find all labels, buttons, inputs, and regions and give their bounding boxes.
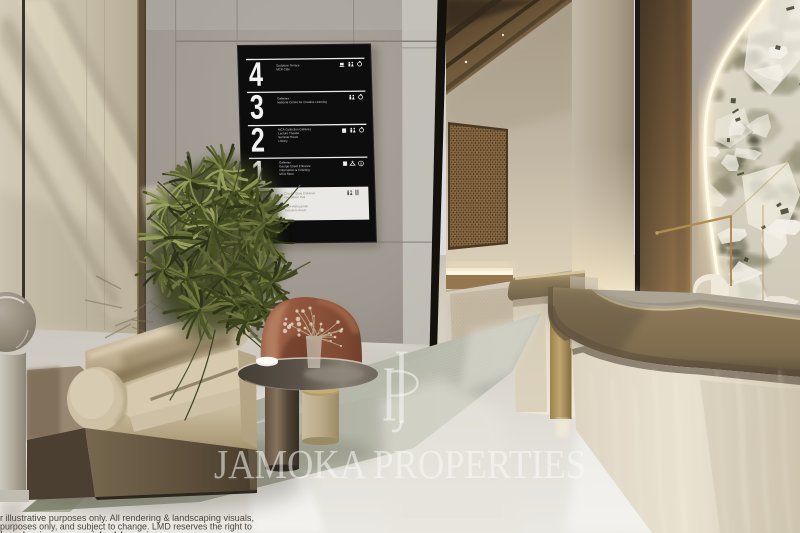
svg-text:JAMOKA PROPERTIES: JAMOKA PROPERTIES xyxy=(214,441,586,487)
svg-text:Library: Library xyxy=(278,139,288,143)
svg-text:National Centre for Creative L: National Centre for Creative Learning xyxy=(277,100,327,105)
svg-text:MCA Store: MCA Store xyxy=(279,172,294,176)
svg-text:Tusculum Room: Tusculum Room xyxy=(284,208,306,212)
svg-text:MCA Cafe: MCA Cafe xyxy=(276,67,290,71)
svg-text:Foundation Hall: Foundation Hall xyxy=(284,195,305,199)
